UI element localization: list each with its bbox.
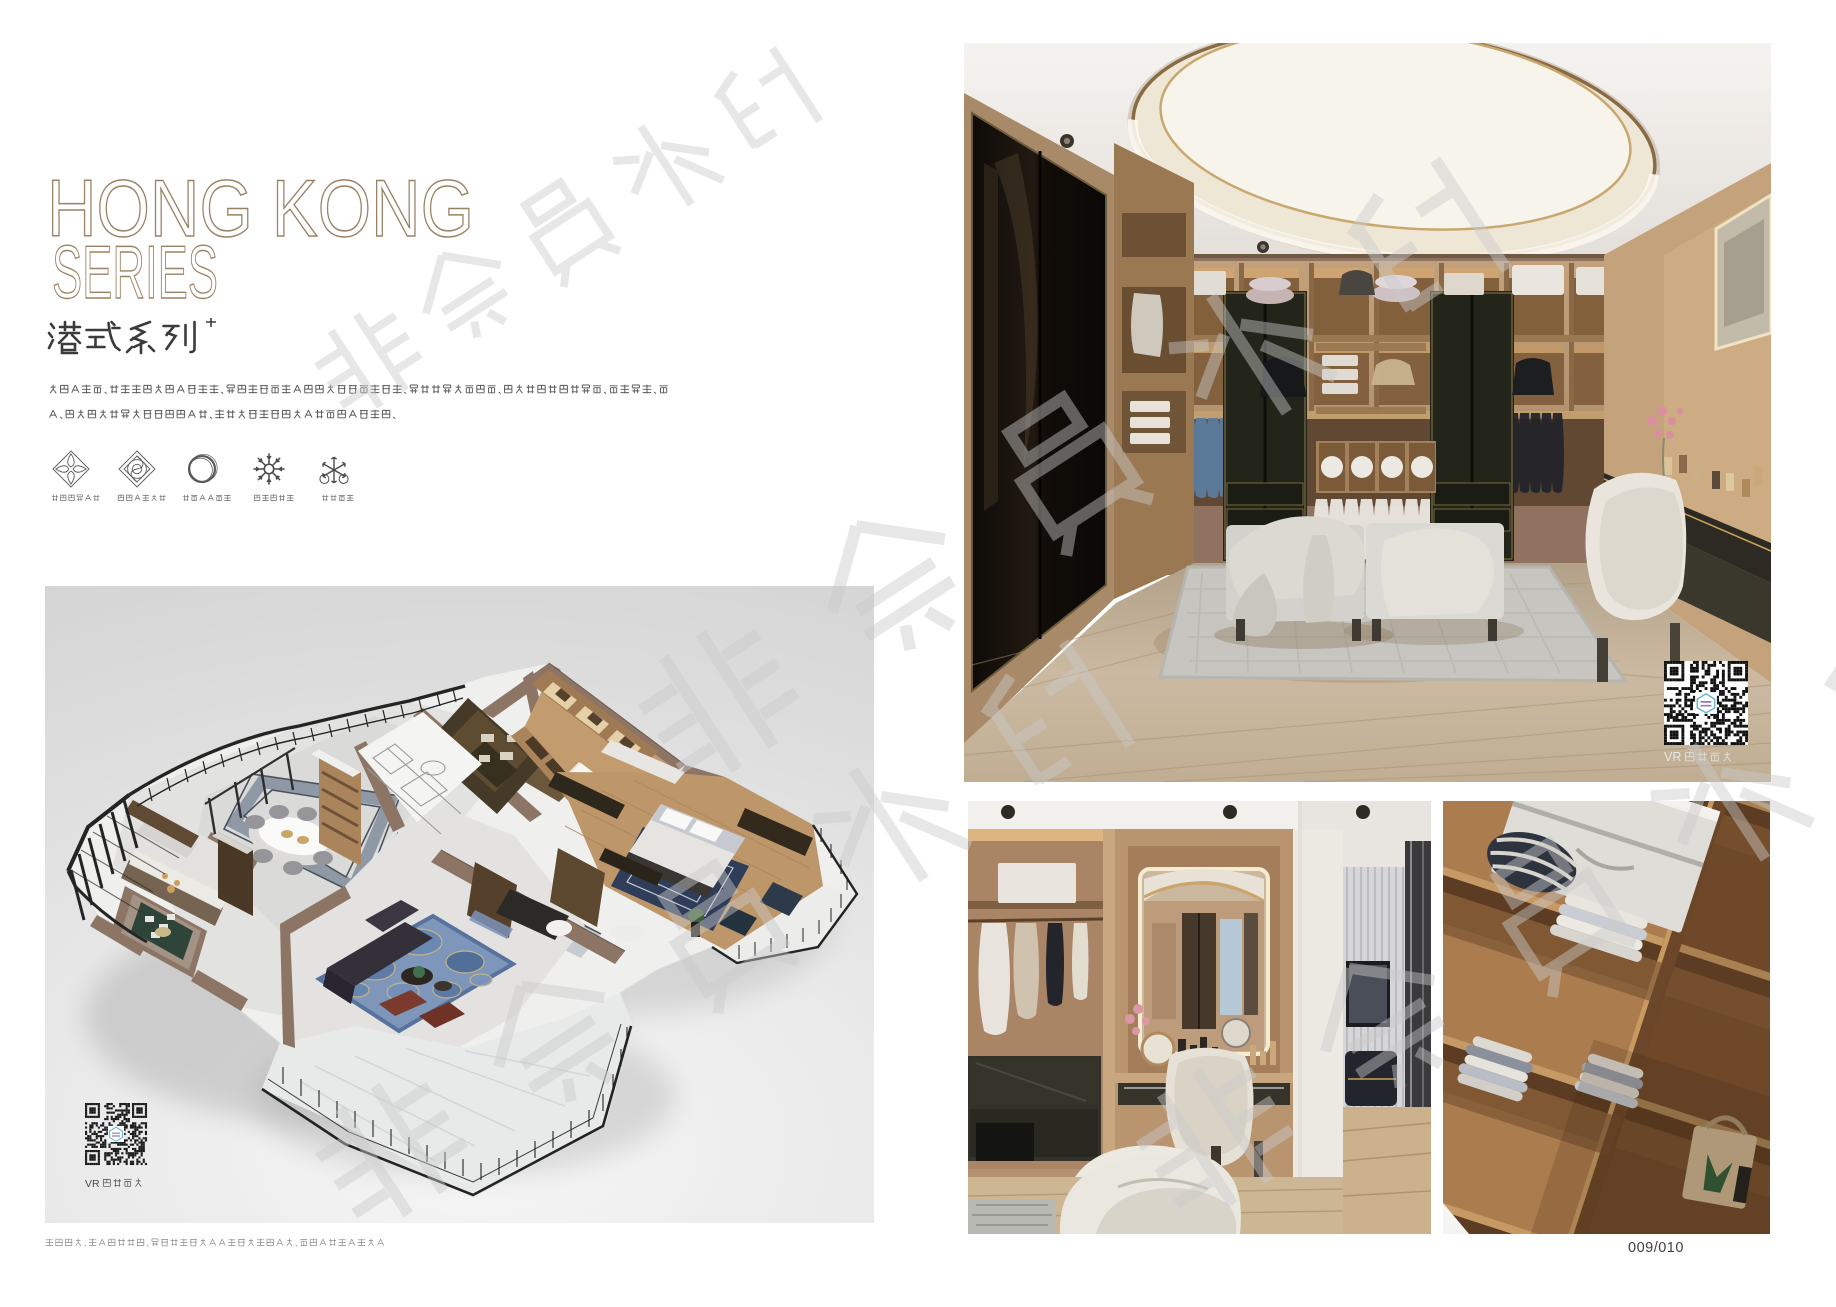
svg-text:VR: VR [1664,750,1681,764]
svg-text:VR: VR [85,1178,100,1190]
svg-text:SERIES: SERIES [52,230,218,310]
